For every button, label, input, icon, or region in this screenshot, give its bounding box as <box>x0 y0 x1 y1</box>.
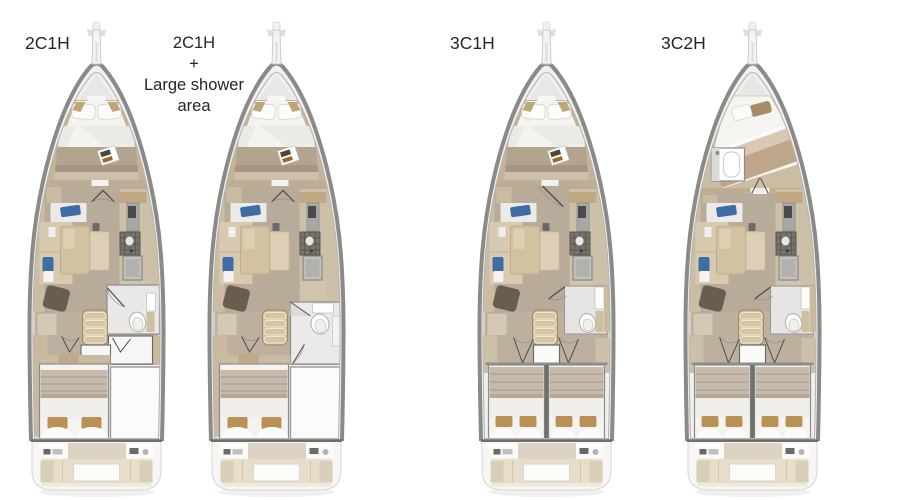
svg-text:2C1H: 2C1H <box>173 34 215 52</box>
svg-text:3C2H: 3C2H <box>661 33 706 53</box>
svg-text:2C1H: 2C1H <box>25 33 70 53</box>
svg-text:Large shower: Large shower <box>144 76 244 94</box>
svg-text:+: + <box>189 55 199 73</box>
svg-text:3C1H: 3C1H <box>450 33 495 53</box>
svg-text:area: area <box>177 97 211 115</box>
